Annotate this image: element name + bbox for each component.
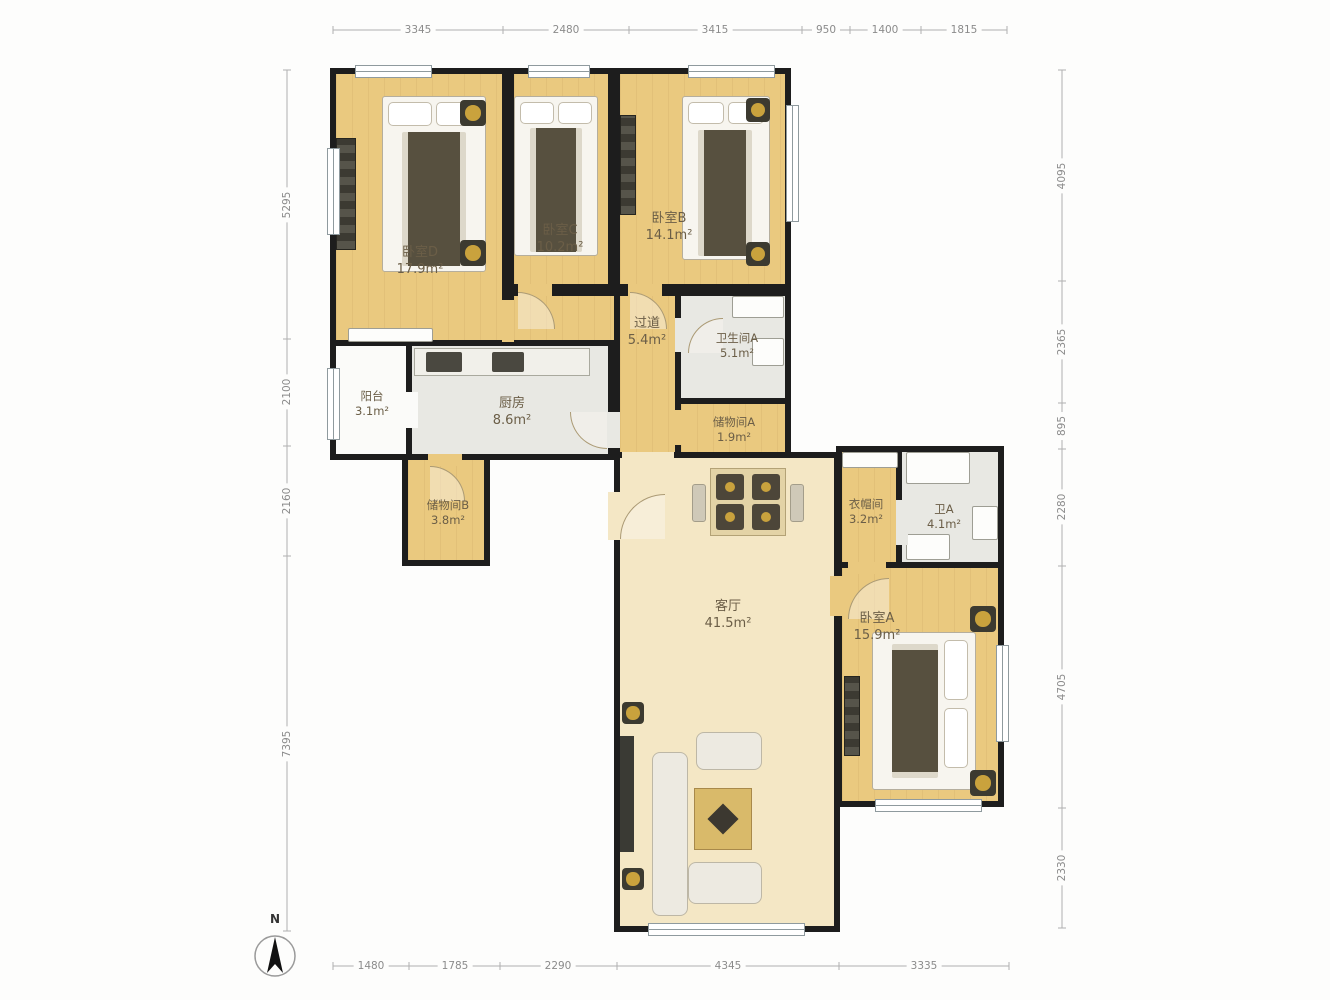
dim-top-4: 950 — [812, 24, 840, 36]
dim-top-1: 3345 — [401, 24, 436, 36]
dim-left-3: 2160 — [281, 484, 293, 519]
compass-north-arrow-icon — [251, 926, 299, 982]
dim-right-2: 2365 — [1056, 325, 1068, 360]
dim-top-2: 2480 — [549, 24, 584, 36]
dim-right-1: 4095 — [1056, 159, 1068, 194]
dim-bottom-1: 1480 — [354, 960, 389, 972]
dim-bottom-5: 3335 — [907, 960, 942, 972]
dim-top-5: 1400 — [868, 24, 903, 36]
dim-bottom-4: 4345 — [711, 960, 746, 972]
dim-right-5: 4705 — [1056, 670, 1068, 705]
compass-north-label: N — [240, 912, 310, 926]
dim-bottom-2: 1785 — [438, 960, 473, 972]
compass: N — [240, 912, 310, 992]
dim-top-6: 1815 — [947, 24, 982, 36]
dim-left-1: 5295 — [281, 188, 293, 223]
dim-top-3: 3415 — [698, 24, 733, 36]
dimension-lines — [0, 0, 1330, 1000]
dim-right-3: 895 — [1056, 412, 1068, 440]
dim-right-4: 2280 — [1056, 490, 1068, 525]
dim-left-2: 2100 — [281, 375, 293, 410]
dim-left-4: 7395 — [281, 727, 293, 762]
dim-right-6: 2330 — [1056, 851, 1068, 886]
floor-plan-canvas: 3345 2480 3415 950 1400 1815 1480 1785 2… — [0, 0, 1330, 1000]
dim-bottom-3: 2290 — [541, 960, 576, 972]
